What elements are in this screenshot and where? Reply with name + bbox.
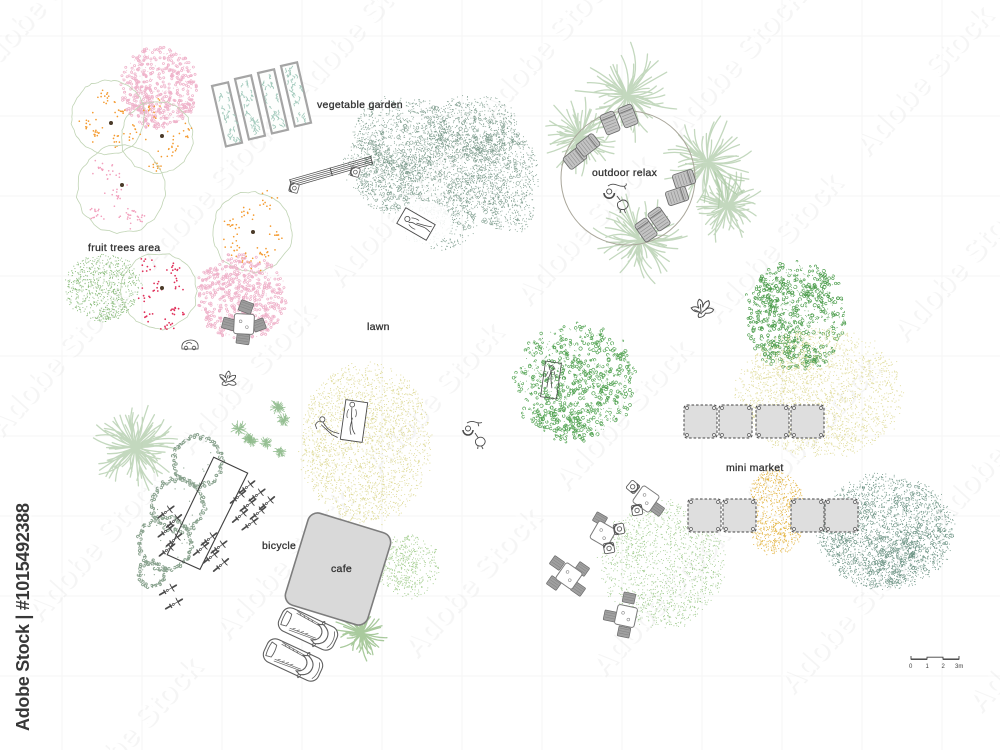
svg-text:lawn: lawn — [367, 321, 390, 333]
svg-text:Adobe Stock | #1015492388: Adobe Stock | #1015492388 — [13, 503, 33, 731]
svg-text:bicycle: bicycle — [262, 540, 296, 552]
svg-text:3m: 3m — [955, 664, 963, 670]
svg-text:fruit trees area: fruit trees area — [88, 242, 161, 254]
svg-text:cafe: cafe — [331, 563, 352, 575]
svg-text:outdoor relax: outdoor relax — [592, 167, 658, 179]
svg-text:mini market: mini market — [726, 462, 784, 474]
svg-text:vegetable garden: vegetable garden — [317, 99, 403, 111]
